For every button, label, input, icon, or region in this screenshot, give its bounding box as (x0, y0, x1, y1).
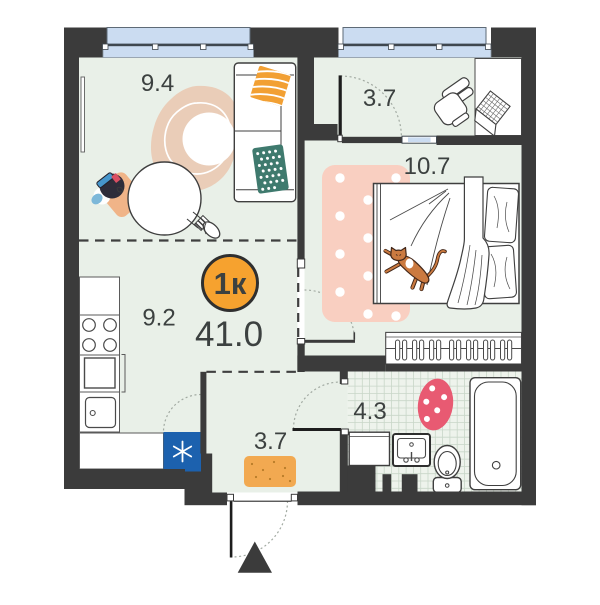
svg-text:4.3: 4.3 (353, 398, 386, 425)
svg-text:3.7: 3.7 (254, 428, 287, 455)
svg-text:41.0: 41.0 (195, 315, 263, 354)
svg-text:10.7: 10.7 (404, 153, 451, 180)
svg-text:1к: 1к (214, 266, 247, 301)
svg-text:9.4: 9.4 (141, 70, 174, 97)
svg-text:3.7: 3.7 (363, 85, 396, 112)
svg-text:9.2: 9.2 (142, 305, 175, 332)
